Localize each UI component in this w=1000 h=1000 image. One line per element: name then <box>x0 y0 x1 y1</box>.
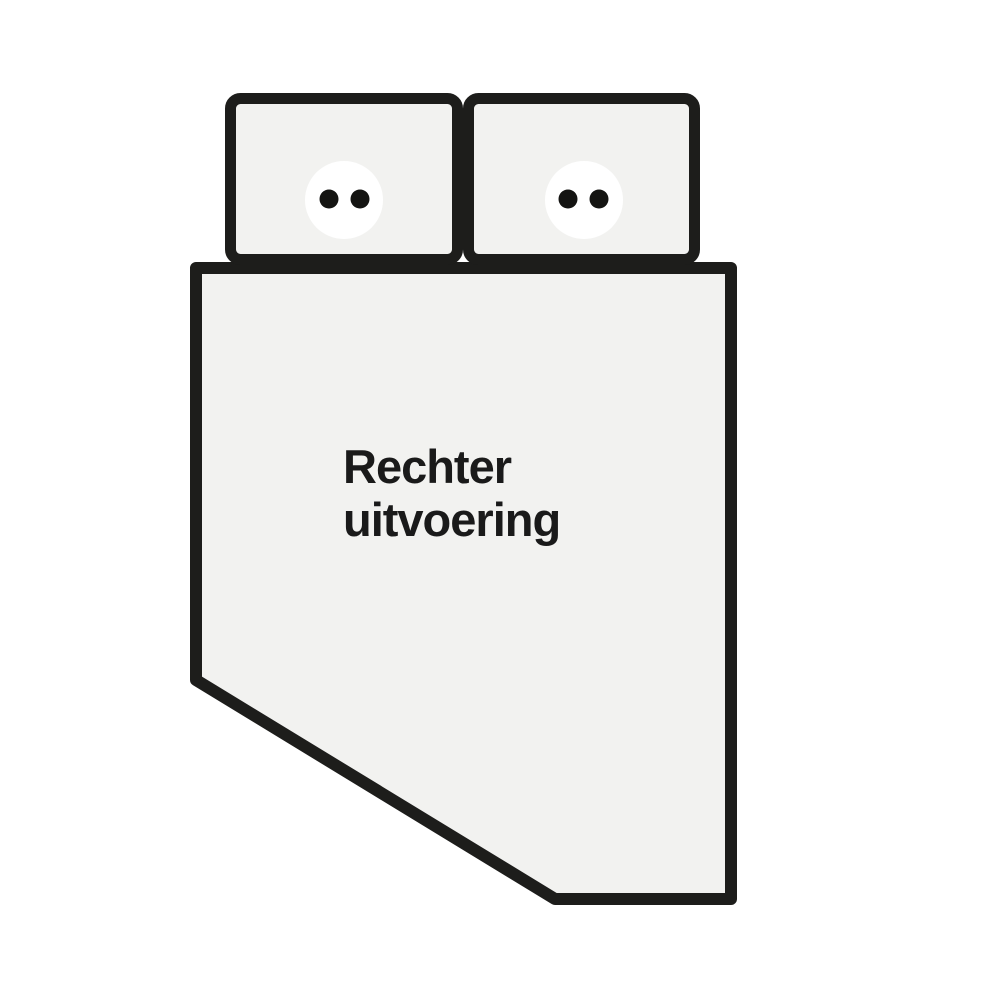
pillow-right-face-icon <box>545 161 623 239</box>
diagram-label-line2: uitvoering <box>343 493 560 546</box>
diagram-label-line1: Rechter <box>343 440 512 493</box>
bed-diagram-svg: Rechter uitvoering <box>0 0 1000 1000</box>
pillow-left-dot-right-icon <box>351 190 370 209</box>
pillow-left-dot-left-icon <box>320 190 339 209</box>
pillow-left-face-icon <box>305 161 383 239</box>
bed-configuration-diagram: Rechter uitvoering <box>0 0 1000 1000</box>
pillow-right-dot-left-icon <box>559 190 578 209</box>
pillow-right-dot-right-icon <box>590 190 609 209</box>
